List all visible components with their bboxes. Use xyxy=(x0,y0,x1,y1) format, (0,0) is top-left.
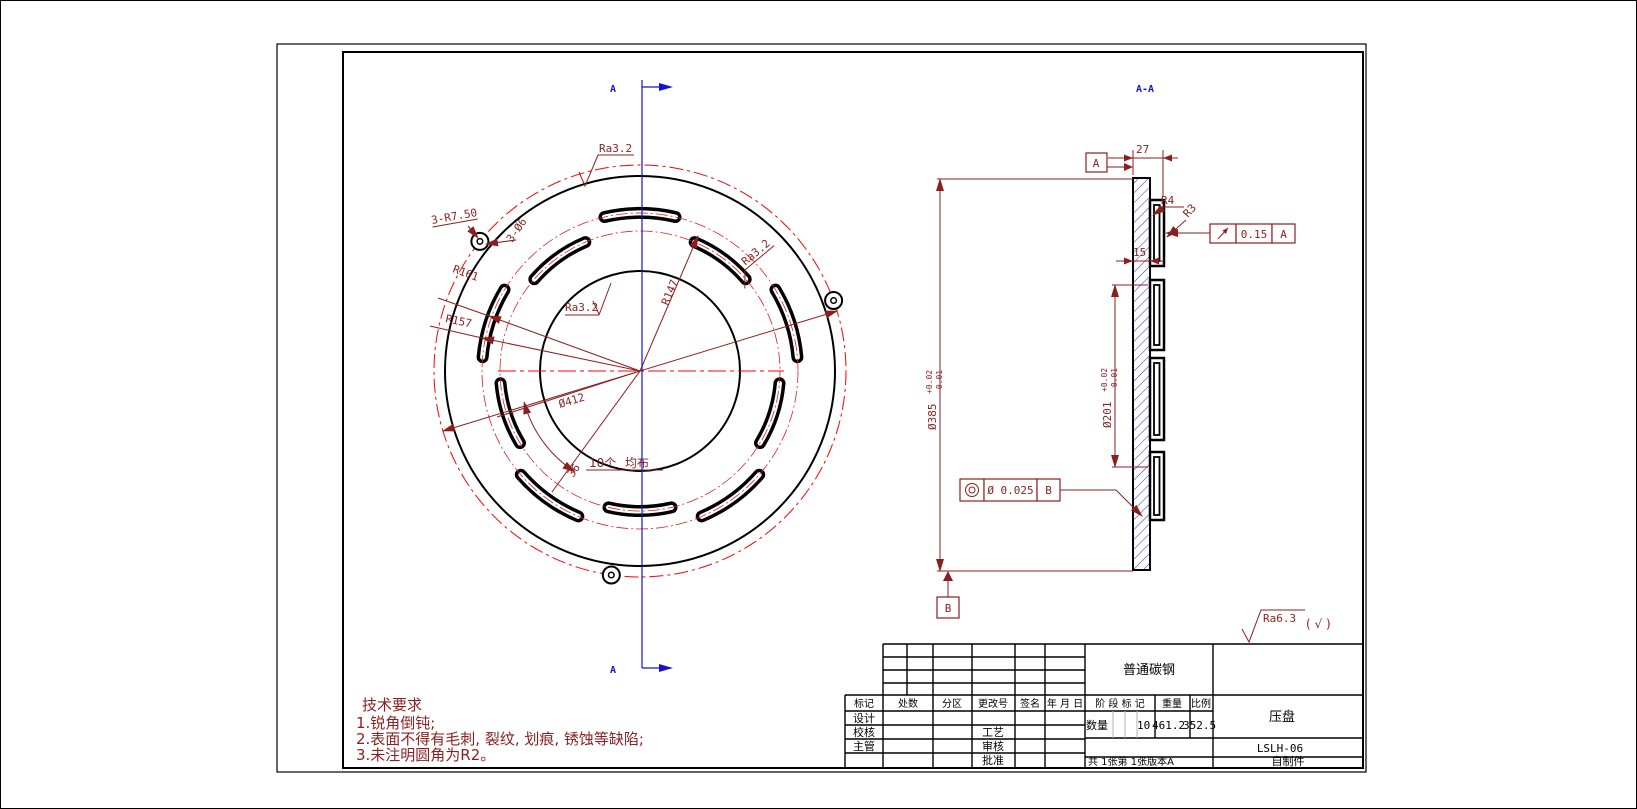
front-dimensions: R147 R161 R157 Ø412 3-R7.50 3-Ø6 10个 均布 xyxy=(430,142,837,492)
role-review: 审核 xyxy=(982,739,1004,753)
runout-value: 0.15 xyxy=(1241,228,1268,241)
front-view: R147 R161 R157 Ø412 3-R7.50 3-Ø6 10个 均布 xyxy=(430,80,846,676)
section-arrow-icon xyxy=(659,664,673,672)
dim-lug-hole: 3-Ø6 xyxy=(504,216,530,245)
col-change-no: 更改号 xyxy=(978,697,1008,710)
dim-lug-radius: 3-R7.50 xyxy=(430,206,478,227)
stage-mark-header: 阶 段 标 记 xyxy=(1095,697,1145,710)
material-cell: 普通碳钢 xyxy=(1123,663,1175,678)
dim-ra-right: Ra3.2 xyxy=(739,237,773,268)
role-approve: 批准 xyxy=(982,753,1004,767)
concentricity-fcf: Ø 0.025 B xyxy=(960,479,1142,516)
section-label-bottom: A xyxy=(610,665,616,676)
scale-value: 352.5 xyxy=(1183,719,1216,732)
datum-triangle-icon xyxy=(943,571,953,581)
tech-req-item: 3.未注明圆角为R2。 xyxy=(356,746,495,764)
col-date: 年 月 日 xyxy=(1047,697,1083,710)
dim-r147: R147 xyxy=(659,278,681,307)
source-cell: 自制件 xyxy=(1272,755,1305,768)
col-mark: 标记 xyxy=(854,698,874,710)
runout-datum: A xyxy=(1280,228,1287,241)
technical-requirements: 技术要求 1.锐角倒钝; 2.表面不得有毛刺, 裂纹, 划痕, 锈蚀等缺陷; 3… xyxy=(356,696,644,764)
dim-15: 15 xyxy=(1133,246,1146,259)
dia385-tol-up: +0.02 xyxy=(925,370,934,394)
image-border xyxy=(1,1,1637,809)
title-block: 普通碳钢 标记 处数 分区 更改号 签名 年 月 日 阶 段 标 记 重量 比例… xyxy=(845,644,1363,768)
col-count: 处数 xyxy=(898,697,918,710)
dim-ra-mid: Ra3.2 xyxy=(565,301,598,314)
sheet-info: 共 1张第 1张版本A xyxy=(1088,755,1174,768)
dim-dia412: Ø412 xyxy=(557,391,586,411)
drawing-frame xyxy=(343,52,1363,768)
section-view: A-A A 27 xyxy=(925,84,1295,618)
section-view-label: A-A xyxy=(1136,84,1154,95)
weight-value: 461.2 xyxy=(1152,719,1185,732)
section-label-top: A xyxy=(610,84,616,95)
dia201-tol-dn: -0.01 xyxy=(1110,368,1119,392)
dim-slot-angle: 36 xyxy=(565,461,583,479)
col-zone: 分区 xyxy=(942,698,962,710)
qty-label: 数量 xyxy=(1086,719,1108,732)
role-check: 校核 xyxy=(853,725,875,739)
dim-slot-count: 10个 xyxy=(589,456,616,470)
surface-note-paren: ( √ ) xyxy=(1306,617,1331,631)
drawing-no: LSLH-06 xyxy=(1257,742,1303,755)
dim-r4: R4 xyxy=(1161,194,1175,207)
qty-value: 10 xyxy=(1137,719,1150,732)
dim-dia201: Ø201 xyxy=(1101,402,1114,429)
dim-r3: R3 xyxy=(1181,201,1200,220)
tech-req-title: 技术要求 xyxy=(362,696,422,714)
surface-note: Ra6.3 ( √ ) xyxy=(1242,610,1331,642)
section-plate xyxy=(1133,178,1150,570)
part-name: 压盘 xyxy=(1269,709,1295,725)
runout-fcf: 0.15 A xyxy=(1166,224,1295,243)
col-sign: 签名 xyxy=(1020,697,1040,710)
dia385-tol-dn: -0.01 xyxy=(935,370,944,394)
conc-value: Ø 0.025 xyxy=(987,484,1033,497)
role-manager: 主管 xyxy=(853,739,875,753)
cad-drawing-page: R147 R161 R157 Ø412 3-R7.50 3-Ø6 10个 均布 xyxy=(0,0,1637,809)
weight-header: 重量 xyxy=(1162,697,1182,710)
role-design: 设计 xyxy=(853,712,875,725)
scale-header: 比例 xyxy=(1191,697,1211,710)
dim-slot-note: 均布 xyxy=(625,456,649,470)
conc-datum: B xyxy=(1045,484,1052,497)
datum-b: B xyxy=(937,571,959,618)
dim-ra-top: Ra3.2 xyxy=(599,142,632,155)
dia201-tol-up: +0.02 xyxy=(1100,368,1109,392)
section-ring-lands xyxy=(1150,200,1164,520)
surface-note-ra: Ra6.3 xyxy=(1263,612,1296,625)
paper-edge xyxy=(277,44,1366,772)
section-arrow-icon xyxy=(659,83,673,91)
dim-27: 27 xyxy=(1136,143,1149,156)
datum-a-label: A xyxy=(1093,157,1100,170)
cad-canvas: R147 R161 R157 Ø412 3-R7.50 3-Ø6 10个 均布 xyxy=(0,0,1637,809)
dim-dia385: Ø385 xyxy=(926,404,939,431)
role-process: 工艺 xyxy=(982,726,1004,739)
datum-b-label: B xyxy=(945,602,952,615)
datum-triangle-icon xyxy=(1124,163,1133,171)
dim-r157: R157 xyxy=(444,312,473,330)
